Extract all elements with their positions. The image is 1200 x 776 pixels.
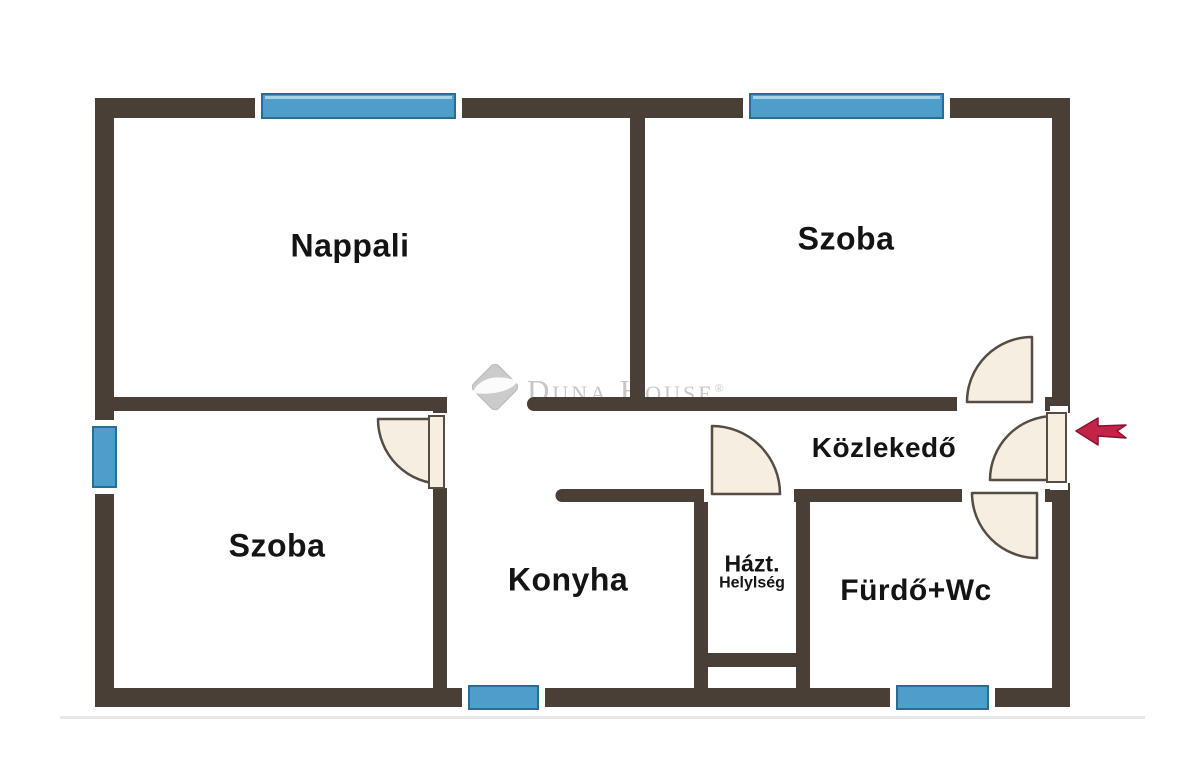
wall-nappali-bottom xyxy=(109,397,443,411)
wall-nappali-szoba xyxy=(630,108,645,411)
wall-corridor-furdo xyxy=(788,489,969,502)
wall-outer-right-lower xyxy=(1052,483,1070,707)
room-label-furdo-wc: Fürdő+Wc xyxy=(840,574,992,608)
entry-arrow-icon xyxy=(1076,418,1126,445)
floorplan-drawing xyxy=(0,0,1200,776)
window-nappali xyxy=(255,92,462,121)
window-szoba-left xyxy=(91,420,118,494)
shadow-line xyxy=(60,716,1145,719)
window-szoba-right xyxy=(743,92,950,121)
walls-layer xyxy=(95,98,1070,707)
brand-diamond-icon xyxy=(470,362,519,411)
doors-layer xyxy=(378,337,1066,558)
door-leaf-entry xyxy=(1047,413,1066,482)
door-arc-entry xyxy=(990,416,1054,480)
room-label-hazt-line1: Házt. xyxy=(725,553,780,576)
room-label-szoba-left: Szoba xyxy=(229,528,326,565)
room-label-konyha: Konyha xyxy=(508,562,628,599)
wall-outer-right-upper xyxy=(1052,98,1070,413)
door-arc-hazt xyxy=(712,426,780,494)
room-label-hazt: Házt. Helylség xyxy=(719,553,785,592)
room-label-hazt-line2: Helylség xyxy=(719,576,785,592)
wall-corridor-konyha xyxy=(562,489,712,502)
door-arc-szoba-right xyxy=(967,337,1032,402)
window-furdo xyxy=(890,684,995,710)
door-arc-furdo xyxy=(972,493,1037,558)
floorplan-canvas: Duna House® xyxy=(0,0,1200,776)
room-label-kozlekedo: Közlekedő xyxy=(812,432,957,464)
wall-szoba-konyha-upper xyxy=(433,397,447,413)
window-konyha xyxy=(462,684,545,710)
door-leaf-szoba-left xyxy=(429,416,444,488)
wall-hazt-right xyxy=(796,489,810,707)
room-label-szoba-right: Szoba xyxy=(798,221,895,258)
wall-szoba-corridor xyxy=(534,397,965,411)
wall-szoba-konyha-lower xyxy=(433,488,447,707)
wall-hazt-left xyxy=(694,489,708,707)
wall-hazt-bottom xyxy=(694,653,810,667)
room-label-nappali: Nappali xyxy=(290,228,409,265)
